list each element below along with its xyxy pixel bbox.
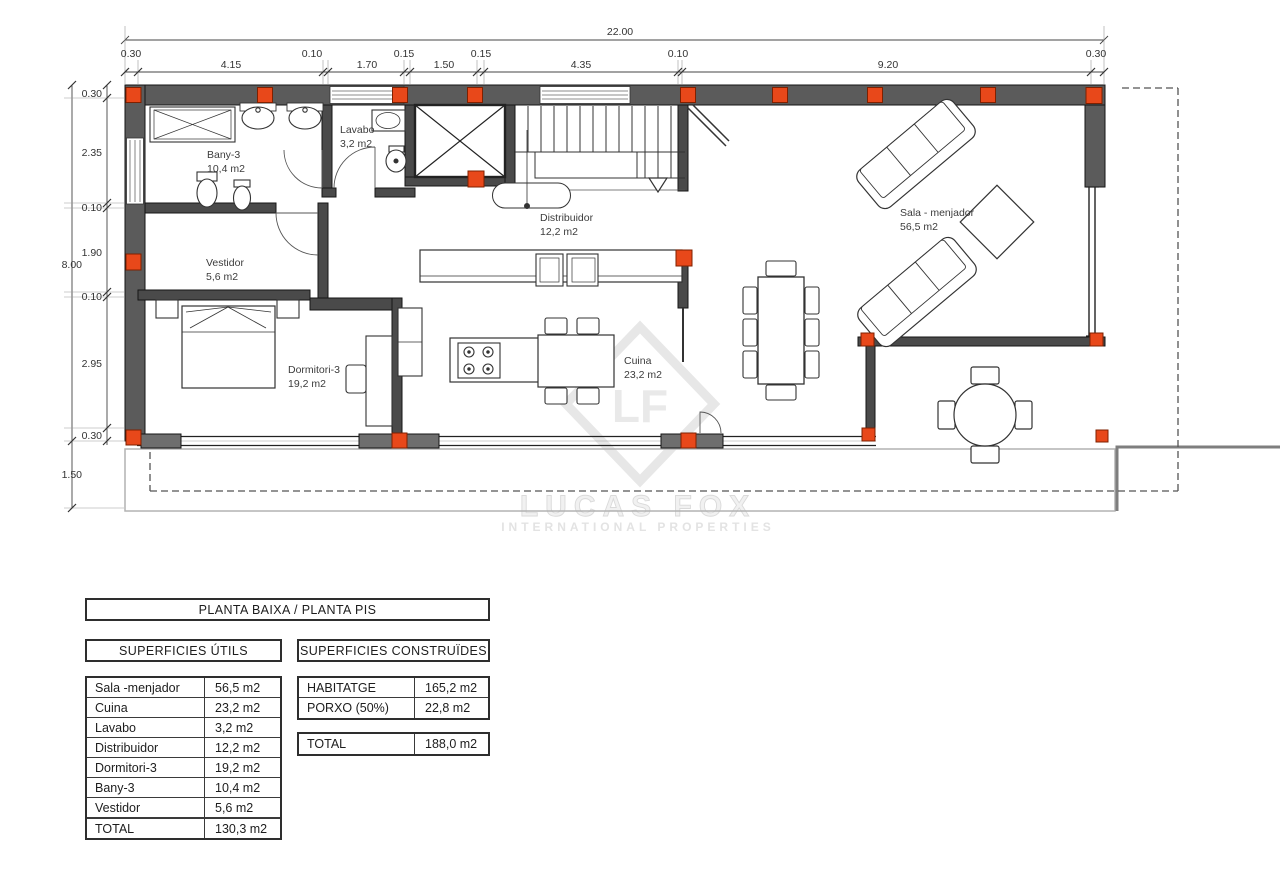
dim-total-width: 22.00	[607, 26, 633, 38]
chair	[805, 351, 819, 378]
desk-chair	[346, 365, 366, 393]
chair	[545, 388, 567, 404]
stair-handrail	[492, 183, 570, 208]
sink	[287, 103, 323, 129]
column	[393, 88, 408, 103]
row-name: HABITATGE	[299, 678, 415, 697]
chair	[577, 388, 599, 404]
round-table	[954, 384, 1016, 446]
dimension-labels-top: 22.00 0.30 4.15 0.10 1.70 0.15 1.50 0.15…	[121, 26, 1107, 71]
cooktop	[458, 343, 500, 378]
table-row: PORXO (50%) 22,8 m2	[299, 698, 488, 718]
lavabo-door	[334, 147, 375, 188]
table-row: Dormitori-3 19,2 m2	[87, 758, 280, 778]
row-name: TOTAL	[299, 734, 415, 754]
floor-plan-drawing: LF LUCAS FOX INTERNATIONAL PROPERTIES 22…	[0, 0, 1280, 560]
table-row-total: TOTAL 188,0 m2	[299, 734, 488, 754]
room-label-lavabo: Lavabo	[340, 124, 375, 136]
dim-label: 0.10	[668, 48, 689, 60]
row-value: 3,2 m2	[205, 718, 280, 737]
chair	[766, 385, 796, 400]
dim-label: 0.30	[82, 88, 103, 100]
wall-elevator-stairs	[505, 105, 515, 186]
chair	[971, 367, 999, 384]
table-row: Lavabo 3,2 m2	[87, 718, 280, 738]
dim-label: 2.35	[82, 147, 103, 159]
dim-label: 4.15	[221, 59, 242, 71]
column	[681, 88, 696, 103]
column	[468, 171, 484, 187]
plan-title-box: PLANTA BAIXA / PLANTA PIS	[85, 598, 490, 621]
column	[1090, 333, 1103, 346]
elevator	[415, 105, 505, 177]
sink	[240, 103, 276, 129]
dim-label: 0.10	[82, 291, 103, 303]
dim-porch-depth: 1.50	[62, 469, 83, 481]
chair	[545, 318, 567, 334]
watermark-logo: LF	[612, 380, 668, 432]
plan-title: PLANTA BAIXA / PLANTA PIS	[199, 603, 377, 617]
vestidor-door	[276, 213, 318, 255]
wall-vestidor-east	[318, 203, 328, 310]
dormitori-furniture	[156, 300, 392, 426]
room-area: 19,2 m2	[288, 378, 326, 390]
column	[1096, 430, 1108, 442]
room-area: 23,2 m2	[624, 369, 662, 381]
row-value: 188,0 m2	[415, 734, 488, 754]
column	[681, 433, 696, 448]
dim-label: 0.15	[471, 48, 492, 60]
built-surfaces-title: SUPERFICIES CONSTRUÏDES	[300, 644, 487, 658]
row-name: Bany-3	[87, 778, 205, 797]
row-value: 22,8 m2	[415, 698, 488, 718]
chair	[971, 446, 999, 463]
dim-label: 1.70	[357, 59, 378, 71]
dim-label: 0.10	[302, 48, 323, 60]
table-row: HABITATGE 165,2 m2	[299, 678, 488, 698]
sofa	[853, 96, 979, 212]
dining-table	[743, 261, 819, 400]
room-area: 10,4 m2	[207, 163, 245, 175]
table-row: Sala -menjador 56,5 m2	[87, 678, 280, 698]
south-glazed-wall	[137, 412, 876, 448]
row-value: 5,6 m2	[205, 798, 280, 817]
column	[773, 88, 788, 103]
row-name: Distribuidor	[87, 738, 205, 757]
chair	[805, 287, 819, 314]
row-name: Cuina	[87, 698, 205, 717]
diagonal-brace	[688, 105, 729, 146]
row-value: 130,3 m2	[205, 819, 280, 838]
dimension-labels-left: 8.00 1.50 0.30 2.35 0.10 1.90 0.10 2.95 …	[62, 88, 103, 481]
column	[868, 88, 883, 103]
bidet	[234, 180, 251, 210]
column	[981, 88, 996, 103]
dim-label: 1.90	[82, 247, 103, 259]
room-area: 5,6 m2	[206, 271, 238, 283]
useful-surfaces-table: Sala -menjador 56,5 m2 Cuina 23,2 m2 Lav…	[85, 676, 282, 840]
nightstand	[277, 300, 299, 318]
table-row: Distribuidor 12,2 m2	[87, 738, 280, 758]
wall-bany-lavabo	[322, 105, 332, 189]
kitchen-island	[450, 338, 540, 382]
chair	[805, 319, 819, 346]
room-area: 56,5 m2	[900, 221, 938, 233]
column	[676, 250, 692, 266]
built-surfaces-header: SUPERFICIES CONSTRUÏDES	[297, 639, 490, 662]
nightstand	[156, 300, 178, 318]
column	[126, 254, 141, 270]
tall-cabinets	[398, 308, 422, 376]
coffee-table	[960, 185, 1034, 259]
chair	[743, 287, 757, 314]
room-label-dormitori3: Dormitori-3	[288, 364, 340, 376]
row-value: 12,2 m2	[205, 738, 280, 757]
wall-right	[1085, 105, 1105, 187]
dim-label: 2.95	[82, 358, 103, 370]
row-name: Sala -menjador	[87, 678, 205, 697]
row-value: 56,5 m2	[205, 678, 280, 697]
row-name: TOTAL	[87, 819, 205, 838]
chair	[743, 351, 757, 378]
kitchen-counter	[420, 250, 682, 286]
dim-label: 0.30	[121, 48, 142, 60]
row-value: 19,2 m2	[205, 758, 280, 777]
dim-label: 0.10	[82, 202, 103, 214]
bed	[182, 306, 275, 388]
chair	[1015, 401, 1032, 429]
row-name: Vestidor	[87, 798, 205, 817]
lavabo-fixtures	[372, 110, 406, 172]
column	[861, 333, 874, 346]
column	[1086, 88, 1102, 104]
useful-surfaces-header: SUPERFICIES ÚTILS	[85, 639, 282, 662]
chair	[577, 318, 599, 334]
table-row: Cuina 23,2 m2	[87, 698, 280, 718]
row-value: 23,2 m2	[205, 698, 280, 717]
row-name: Lavabo	[87, 718, 205, 737]
column	[258, 88, 273, 103]
dim-label: 4.35	[571, 59, 592, 71]
table-row: Vestidor 5,6 m2	[87, 798, 280, 818]
chair	[766, 261, 796, 276]
column	[468, 88, 483, 103]
room-area: 3,2 m2	[340, 138, 372, 150]
dim-label: 0.30	[82, 430, 103, 442]
bany-door	[284, 150, 322, 188]
stairs	[492, 106, 685, 209]
room-label-distribuidor: Distribuidor	[540, 212, 594, 224]
dim-label: 0.15	[394, 48, 415, 60]
watermark-line1: LUCAS FOX	[520, 490, 756, 523]
room-label-vestidor: Vestidor	[206, 257, 244, 269]
built-surfaces-table: HABITATGE 165,2 m2 PORXO (50%) 22,8 m2	[297, 676, 490, 720]
terrace-step-edge	[1117, 447, 1280, 511]
table-row-total: TOTAL 130,3 m2	[87, 818, 280, 838]
watermark-line2: INTERNATIONAL PROPERTIES	[501, 520, 775, 534]
row-value: 10,4 m2	[205, 778, 280, 797]
dim-label: 0.30	[1086, 48, 1107, 60]
row-name: PORXO (50%)	[299, 698, 415, 718]
floor-plan: LF LUCAS FOX INTERNATIONAL PROPERTIES 22…	[0, 0, 1280, 560]
room-label-sala-menjador: Sala - menjador	[900, 207, 975, 219]
column	[392, 433, 407, 448]
useful-surfaces-title: SUPERFICIES ÚTILS	[119, 644, 248, 658]
row-name: Dormitori-3	[87, 758, 205, 777]
toilet	[197, 172, 217, 207]
built-surfaces-total: TOTAL 188,0 m2	[297, 732, 490, 756]
dim-label: 1.50	[434, 59, 455, 71]
wall-dormitori-north	[310, 298, 402, 310]
table-row: Bany-3 10,4 m2	[87, 778, 280, 798]
column	[126, 88, 141, 103]
chair	[743, 319, 757, 346]
row-value: 165,2 m2	[415, 678, 488, 697]
wall-vestidor-dormitori	[138, 290, 310, 300]
chair	[938, 401, 955, 429]
column	[126, 430, 141, 445]
room-label-bany3: Bany-3	[207, 149, 240, 161]
column	[862, 428, 875, 441]
room-label-cuina: Cuina	[624, 355, 652, 367]
dim-label: 9.20	[878, 59, 899, 71]
desk	[366, 336, 392, 426]
wall-lavabo-elevator	[405, 105, 415, 186]
room-area: 12,2 m2	[540, 226, 578, 238]
dim-total-height: 8.00	[62, 259, 83, 271]
